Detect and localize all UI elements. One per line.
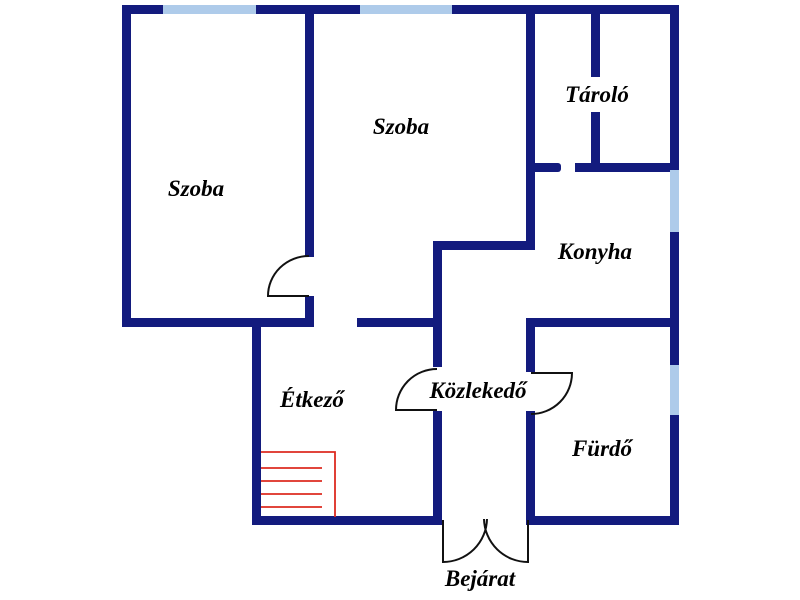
wall-right: [670, 5, 679, 525]
door-arc-furdo: [531, 373, 572, 414]
room-label-kozlekedo: Közlekedő: [428, 378, 528, 403]
wall-konyha-top: [433, 241, 535, 250]
room-label-konyha: Konyha: [557, 239, 632, 264]
wall-left: [122, 5, 131, 327]
door-arc-szoba: [268, 256, 309, 296]
wall-furdo-left: [526, 411, 535, 525]
wall-szoba-middle-bottom: [357, 318, 442, 327]
room-label-bejarat: Bejárat: [444, 566, 516, 591]
wall-corridor-left-upper: [433, 245, 442, 367]
door-arc-entrance-left: [443, 519, 487, 562]
wall-corridor-left-lower: [433, 411, 442, 525]
wall-center-vertical: [526, 5, 535, 247]
window-szoba-middle: [360, 5, 452, 14]
door-arc-entrance-right: [484, 519, 528, 562]
room-label-furdo: Fürdő: [571, 436, 634, 461]
room-label-szoba-left: Szoba: [168, 176, 224, 201]
wall-konyha-furdo-divider: [528, 318, 679, 327]
wall-tarolo-bottom-right: [575, 163, 679, 172]
floor-plan: Szoba Szoba Tároló Konyha Étkező Közleke…: [0, 0, 800, 600]
wall-tarolo-bottom-left: [526, 163, 561, 172]
stairs: [261, 452, 335, 517]
room-label-etkezo: Étkező: [279, 387, 345, 412]
window-konyha: [670, 170, 679, 232]
floor-plan-canvas: Szoba Szoba Tároló Konyha Étkező Közleke…: [0, 0, 800, 600]
wall-szoba-divider-upper: [305, 5, 314, 257]
wall-bottom-right: [528, 516, 679, 525]
window-szoba-left: [163, 5, 256, 14]
wall-etkezo-left: [252, 318, 261, 525]
room-labels: Szoba Szoba Tároló Konyha Étkező Közleke…: [168, 82, 634, 591]
room-label-szoba-middle: Szoba: [373, 114, 429, 139]
room-label-tarolo: Tároló: [565, 82, 629, 107]
windows: [163, 5, 679, 415]
wall-bottom-left: [252, 516, 442, 525]
window-furdo: [670, 365, 679, 415]
wall-tarolo-inner-upper: [591, 5, 600, 77]
wall-szoba-left-bottom: [122, 318, 313, 327]
wall-szoba-divider-lower: [305, 296, 314, 327]
